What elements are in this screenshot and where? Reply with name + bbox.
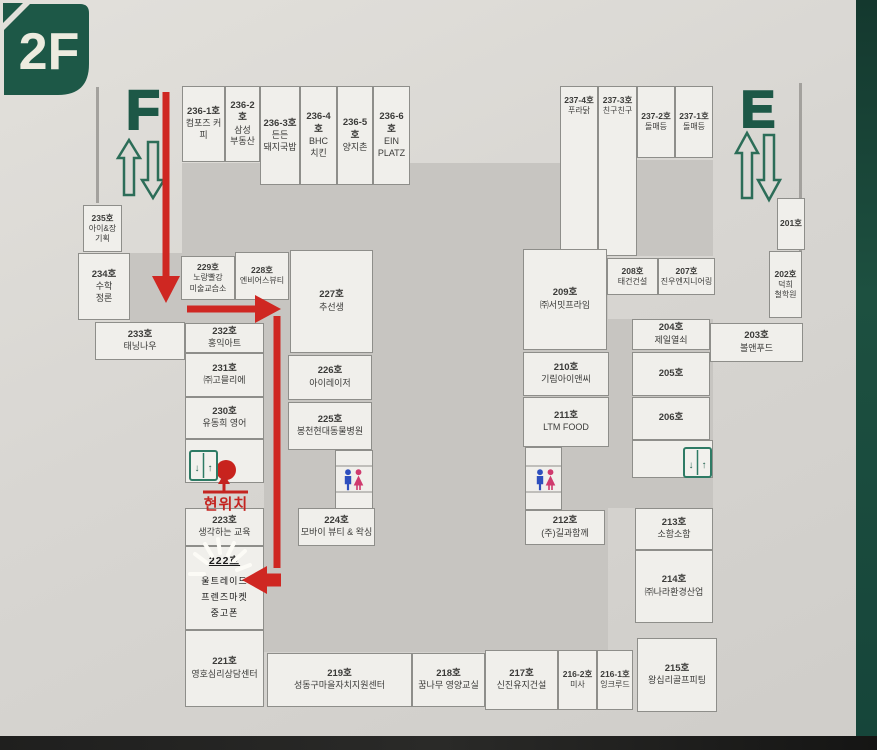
room-235: 235호아이&장 기획 bbox=[83, 205, 122, 252]
down-arrow-icon bbox=[758, 135, 780, 200]
sign-frame-bottom bbox=[0, 736, 877, 750]
stair-f-label: F bbox=[126, 78, 160, 141]
elevator-cell-left bbox=[185, 439, 264, 483]
room-206: 206호 bbox=[632, 397, 710, 440]
room-228: 228호엔비어스뷰티 bbox=[235, 252, 289, 300]
room-215: 215호왕십리골프피팅 bbox=[637, 638, 717, 712]
room-205: 205호 bbox=[632, 352, 710, 396]
room-225: 225호봉천현대동물병원 bbox=[288, 402, 372, 450]
room-222-highlighted: 222호울트레이드 프렌즈마켓 중고폰 bbox=[185, 546, 264, 630]
room-207: 207호진우엔지니어링 bbox=[658, 258, 715, 295]
sign-frame-right bbox=[856, 0, 877, 737]
room-208: 208호태건건설 bbox=[607, 258, 658, 295]
room-204: 204호제일열쇠 bbox=[632, 319, 710, 350]
room-236-1: 236-1호컴포즈 커피 bbox=[182, 86, 225, 162]
room-236-5: 236-5호양지촌 bbox=[337, 86, 373, 185]
wall-line bbox=[96, 87, 99, 203]
room-237-3: 237-3호친구친구 bbox=[598, 86, 637, 256]
room-218: 218호꿈나무 영양교실 bbox=[412, 653, 485, 707]
restroom-cell-right bbox=[525, 447, 562, 510]
room-227: 227호추선생 bbox=[290, 250, 373, 353]
stairwell-e: E bbox=[736, 81, 780, 200]
room-236-4: 236-4호BHC 치킨 bbox=[300, 86, 337, 185]
elevator-cell-right bbox=[632, 440, 713, 478]
room-232: 232호홍익아트 bbox=[185, 323, 264, 353]
room-217: 217호신진유지건설 bbox=[485, 650, 558, 710]
room-201: 201호 bbox=[777, 198, 805, 250]
corridor-core bbox=[637, 160, 713, 256]
room-203: 203호볼앤푸드 bbox=[710, 323, 803, 362]
room-216-2: 216-2호미사 bbox=[558, 650, 597, 710]
room-236-2: 236-2호삼성 부동산 bbox=[225, 86, 260, 162]
up-arrow-icon bbox=[736, 133, 758, 198]
room-237-2: 237-2호돌매등 bbox=[637, 86, 675, 158]
stairwell-f: F bbox=[118, 78, 164, 198]
room-231: 231호㈜고믈리에 bbox=[185, 353, 264, 397]
room-213: 213호소함소함 bbox=[635, 508, 713, 550]
room-236-3: 236-3호든든 돼지국밥 bbox=[260, 86, 300, 185]
floor-badge-text: 2F bbox=[19, 23, 80, 81]
room-216-1: 216-1호잉크루드 bbox=[597, 650, 633, 710]
room-230: 230호유동희 영어 bbox=[185, 397, 264, 439]
room-223: 223호생각하는 교육 bbox=[185, 508, 264, 546]
stair-e-label: E bbox=[741, 81, 776, 139]
room-224: 224호모바이 뷰티 & 왁싱 bbox=[298, 508, 375, 546]
room-237-4: 237-4호푸라닭 bbox=[560, 86, 598, 256]
room-209: 209호㈜서밋프라임 bbox=[523, 249, 607, 350]
room-221: 221호영호심리상담센터 bbox=[185, 630, 264, 707]
room-236-6: 236-6호EIN PLATZ bbox=[373, 86, 410, 185]
room-219: 219호성동구마을자치지원센터 bbox=[267, 653, 412, 707]
room-214: 214호㈜나라환경산업 bbox=[635, 550, 713, 623]
corridor-core bbox=[130, 253, 182, 322]
down-arrow-icon bbox=[142, 142, 164, 198]
room-237-1: 237-1호돌매등 bbox=[675, 86, 713, 158]
room-226: 226호아이레이저 bbox=[288, 355, 372, 400]
room-229: 229호노랑빨강 미술교습소 bbox=[181, 256, 235, 300]
room-212: 212호(주)길과함께 bbox=[525, 510, 605, 545]
room-233: 233호태닝나우 bbox=[95, 322, 185, 360]
up-arrow-icon bbox=[118, 140, 140, 195]
floor-badge: 2F bbox=[3, 3, 89, 95]
room-211: 211호LTM FOOD bbox=[523, 397, 609, 447]
room-202: 202호덕희 철학원 bbox=[769, 251, 802, 318]
floor-map-2f: 236-1호컴포즈 커피 236-2호삼성 부동산 236-3호든든 돼지국밥 … bbox=[0, 0, 877, 750]
room-210: 210호기림아이앤씨 bbox=[523, 352, 609, 396]
badge-fold-corner bbox=[3, 3, 23, 23]
restroom-cell-left bbox=[335, 450, 373, 516]
room-234: 234호수학 정론 bbox=[78, 253, 130, 320]
